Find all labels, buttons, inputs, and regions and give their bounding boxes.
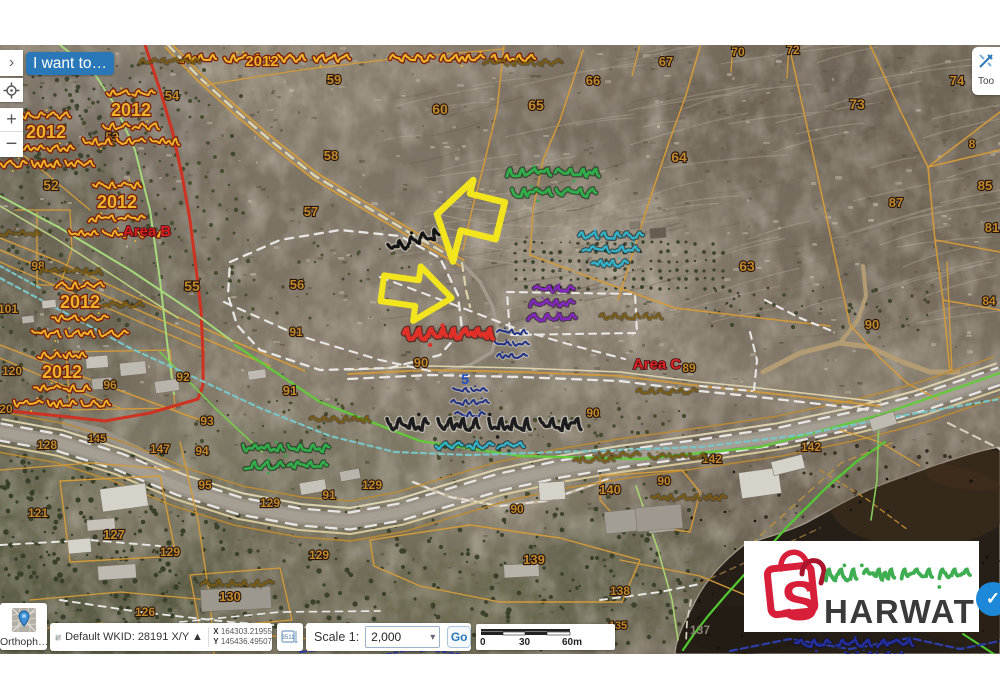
- svg-text:90: 90: [414, 355, 428, 370]
- svg-text:128: 128: [37, 438, 57, 452]
- svg-text:120: 120: [2, 364, 22, 378]
- svg-text:60m: 60m: [562, 637, 582, 648]
- svg-text:73: 73: [849, 96, 865, 112]
- svg-text:20: 20: [0, 402, 13, 416]
- svg-text:89: 89: [682, 361, 696, 375]
- svg-text:2012: 2012: [245, 53, 278, 70]
- svg-text:3511: 3511: [282, 635, 296, 641]
- svg-text:55: 55: [184, 278, 200, 294]
- svg-text:137: 137: [690, 623, 710, 637]
- svg-text:60: 60: [432, 101, 448, 117]
- svg-text:65: 65: [528, 97, 544, 113]
- svg-text:90: 90: [586, 406, 600, 420]
- svg-text:90: 90: [510, 502, 524, 516]
- svg-text:54: 54: [165, 88, 180, 103]
- svg-text:0: 0: [480, 637, 486, 648]
- svg-text:145: 145: [88, 433, 106, 445]
- svg-text:Area B: Area B: [123, 223, 172, 240]
- svg-text:87: 87: [889, 195, 903, 210]
- svg-text:129: 129: [260, 496, 280, 510]
- svg-text:74: 74: [950, 73, 965, 88]
- svg-text:57: 57: [304, 204, 318, 219]
- svg-text:8: 8: [969, 137, 976, 151]
- svg-text:66: 66: [586, 73, 600, 88]
- svg-text:101: 101: [0, 302, 18, 316]
- svg-text:63: 63: [739, 258, 755, 274]
- svg-text:2012: 2012: [97, 192, 137, 212]
- svg-text:81: 81: [985, 220, 999, 235]
- svg-text:94: 94: [195, 444, 209, 458]
- svg-text:58: 58: [324, 148, 338, 163]
- svg-text:138: 138: [610, 584, 630, 598]
- svg-text:126: 126: [135, 605, 155, 619]
- svg-text:147: 147: [150, 442, 170, 456]
- svg-text:85: 85: [978, 178, 992, 193]
- svg-text:2012: 2012: [42, 362, 82, 382]
- svg-text:70: 70: [731, 45, 745, 59]
- svg-text:121: 121: [28, 506, 48, 520]
- svg-text:2012: 2012: [26, 122, 66, 142]
- svg-text:129: 129: [160, 545, 180, 559]
- svg-text:72: 72: [786, 43, 800, 57]
- svg-text:129: 129: [309, 548, 329, 562]
- svg-text:64: 64: [671, 149, 687, 165]
- svg-text:2012: 2012: [60, 292, 100, 312]
- svg-text:139: 139: [523, 552, 545, 567]
- svg-text:2012: 2012: [111, 100, 151, 120]
- svg-text:96: 96: [103, 378, 117, 392]
- svg-text:91: 91: [322, 488, 336, 502]
- svg-text:90: 90: [865, 317, 879, 332]
- svg-text:93: 93: [200, 414, 214, 428]
- svg-text:84: 84: [982, 294, 996, 308]
- svg-text:91: 91: [289, 325, 303, 339]
- svg-text:Area C: Area C: [633, 356, 682, 373]
- svg-text:52: 52: [43, 177, 59, 193]
- svg-text:59: 59: [327, 72, 341, 87]
- svg-text:90: 90: [657, 474, 671, 488]
- svg-text:91: 91: [283, 383, 297, 398]
- svg-text:5: 5: [461, 371, 469, 387]
- svg-text:67: 67: [659, 54, 673, 69]
- svg-text:92: 92: [176, 370, 190, 384]
- svg-text:130: 130: [219, 589, 241, 604]
- svg-text:56: 56: [290, 277, 304, 292]
- svg-text:30: 30: [519, 637, 531, 648]
- svg-text:142: 142: [801, 440, 821, 454]
- svg-text:95: 95: [198, 478, 212, 492]
- svg-text:127: 127: [103, 527, 125, 542]
- svg-text:140: 140: [599, 482, 621, 497]
- svg-text:129: 129: [362, 478, 382, 492]
